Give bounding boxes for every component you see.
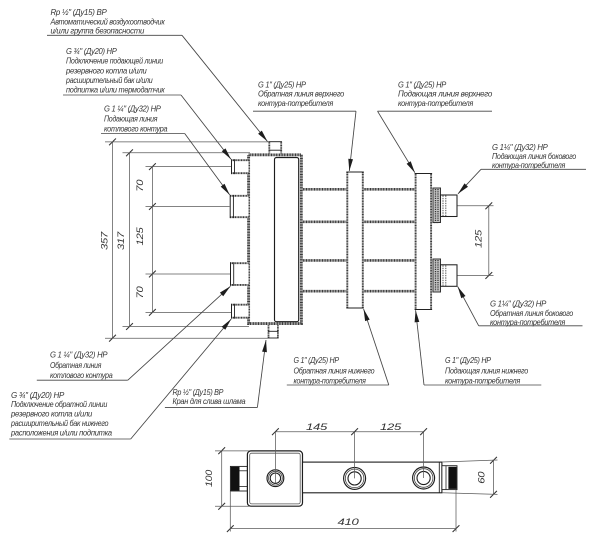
svg-text:резервного котла и/или: резервного котла и/или <box>10 410 93 419</box>
svg-text:Кран для слива шлама: Кран для слива шлама <box>173 397 247 406</box>
svg-text:125: 125 <box>380 422 403 432</box>
svg-text:Подающая линия нижнего: Подающая линия нижнего <box>445 367 529 376</box>
svg-text:контура-потребителя: контура-потребителя <box>398 99 474 108</box>
svg-text:Подающая линия верхнего: Подающая линия верхнего <box>398 90 493 99</box>
svg-text:контура-потребителя: контура-потребителя <box>492 161 566 170</box>
svg-text:G 1¼" (Ду32) НР: G 1¼" (Ду32) НР <box>490 300 547 309</box>
svg-text:60: 60 <box>476 472 486 484</box>
svg-text:и/или группа безопасности: и/или группа безопасности <box>51 26 145 35</box>
svg-text:Обратная линия бокового: Обратная линия бокового <box>490 309 574 318</box>
svg-text:контура-потребителя: контура-потребителя <box>445 377 521 386</box>
svg-text:Подающая линия: Подающая линия <box>104 114 158 123</box>
svg-text:Rp ½" (Ду15) ВР: Rp ½" (Ду15) ВР <box>173 388 224 397</box>
svg-text:317: 317 <box>116 231 126 250</box>
svg-text:357: 357 <box>99 231 109 250</box>
svg-text:контура-потребителя: контура-потребителя <box>294 377 367 386</box>
svg-text:расположения и/или подпитка: расположения и/или подпитка <box>10 429 112 438</box>
svg-text:G 1" (Ду25) НР: G 1" (Ду25) НР <box>258 81 307 90</box>
svg-text:G ¾" (Ду20) НР: G ¾" (Ду20) НР <box>11 391 65 400</box>
svg-text:G 1" (Ду25) НР: G 1" (Ду25) НР <box>445 356 492 365</box>
svg-text:расширительный бак и/или: расширительный бак и/или <box>65 76 153 85</box>
svg-text:G ¾" (Ду20) НР: G ¾" (Ду20) НР <box>66 47 117 56</box>
svg-text:Подключение обратной линии: Подключение обратной линии <box>11 400 108 409</box>
svg-text:G 1 ¼" (Ду32) НР: G 1 ¼" (Ду32) НР <box>50 350 108 359</box>
svg-text:Подающая линия бокового: Подающая линия бокового <box>492 152 577 161</box>
svg-text:100: 100 <box>204 470 214 487</box>
svg-text:резервного котла и/или: резервного котла и/или <box>65 66 147 75</box>
svg-text:G 1 ¼" (Ду32) НР: G 1 ¼" (Ду32) НР <box>104 104 161 113</box>
svg-text:Обратная линия: Обратная линия <box>50 361 102 370</box>
svg-text:Подключение подающей линии: Подключение подающей линии <box>66 57 164 66</box>
svg-text:125: 125 <box>135 226 145 245</box>
svg-text:G 1" (Ду25) НР: G 1" (Ду25) НР <box>398 81 447 90</box>
svg-text:Обратная линия верхнего: Обратная линия верхнего <box>258 90 345 99</box>
svg-text:котлового контура: котлового контура <box>50 371 113 380</box>
svg-text:145: 145 <box>306 422 329 432</box>
svg-text:котлового контура: котлового контура <box>104 124 168 133</box>
svg-text:125: 125 <box>474 229 484 248</box>
svg-text:70: 70 <box>135 180 145 192</box>
svg-text:контура-потребителя: контура-потребителя <box>258 99 334 108</box>
svg-text:G 1¼" (Ду32) НР: G 1¼" (Ду32) НР <box>492 143 548 152</box>
svg-text:Автоматический воздухоотводчик: Автоматический воздухоотводчик <box>50 17 166 26</box>
svg-text:Обратная линия нижнего: Обратная линия нижнего <box>294 367 375 376</box>
svg-text:подпитка и/или термодатчик: подпитка и/или термодатчик <box>66 86 166 95</box>
svg-text:410: 410 <box>338 517 359 527</box>
svg-text:Rp ½" (Ду15) ВР: Rp ½" (Ду15) ВР <box>51 8 108 17</box>
svg-text:расширительный бак нижнего: расширительный бак нижнего <box>10 419 109 428</box>
svg-text:70: 70 <box>135 286 145 298</box>
svg-text:G 1" (Ду25) НР: G 1" (Ду25) НР <box>294 356 340 365</box>
